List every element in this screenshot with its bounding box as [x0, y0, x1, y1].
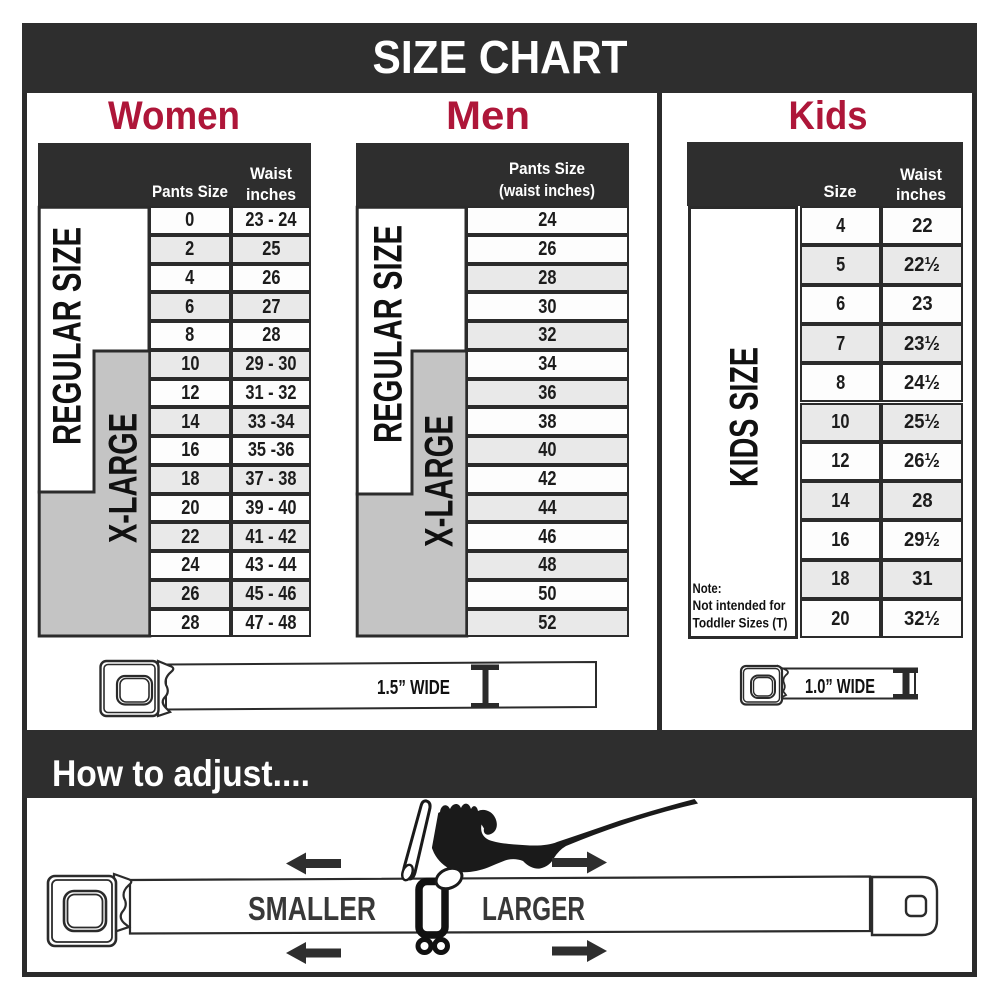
svg-text:X-LARGE: X-LARGE: [101, 413, 145, 543]
svg-text:REGULAR SIZE: REGULAR SIZE: [366, 225, 410, 443]
svg-text:1.5” WIDE: 1.5” WIDE: [377, 677, 450, 699]
svg-text:REGULAR SIZE: REGULAR SIZE: [45, 227, 89, 445]
svg-text:LARGER: LARGER: [482, 890, 585, 927]
svg-text:Kids: Kids: [789, 94, 868, 138]
svg-text:Not intended for: Not intended for: [693, 598, 787, 613]
svg-text:How to adjust....: How to adjust....: [52, 753, 310, 794]
svg-text:inches: inches: [246, 185, 296, 204]
svg-text:Size: Size: [824, 182, 857, 201]
svg-text:Pants Size: Pants Size: [152, 182, 228, 201]
svg-text:Toddler Sizes (T): Toddler Sizes (T): [693, 616, 788, 631]
svg-text:X-LARGE: X-LARGE: [417, 415, 461, 547]
svg-text:SIZE CHART: SIZE CHART: [373, 31, 628, 83]
svg-text:1.0” WIDE: 1.0” WIDE: [805, 676, 875, 698]
svg-text:Waist: Waist: [250, 164, 292, 183]
svg-text:inches: inches: [896, 185, 946, 204]
svg-text:Waist: Waist: [900, 165, 942, 184]
svg-text:SMALLER: SMALLER: [248, 890, 376, 927]
svg-text:Pants Size: Pants Size: [509, 159, 585, 178]
svg-text:Note:: Note:: [693, 581, 722, 596]
svg-text:KIDS SIZE: KIDS SIZE: [722, 347, 766, 487]
svg-text:Men: Men: [446, 94, 530, 138]
svg-text:(waist inches): (waist inches): [499, 181, 595, 200]
svg-text:Women: Women: [108, 94, 240, 138]
